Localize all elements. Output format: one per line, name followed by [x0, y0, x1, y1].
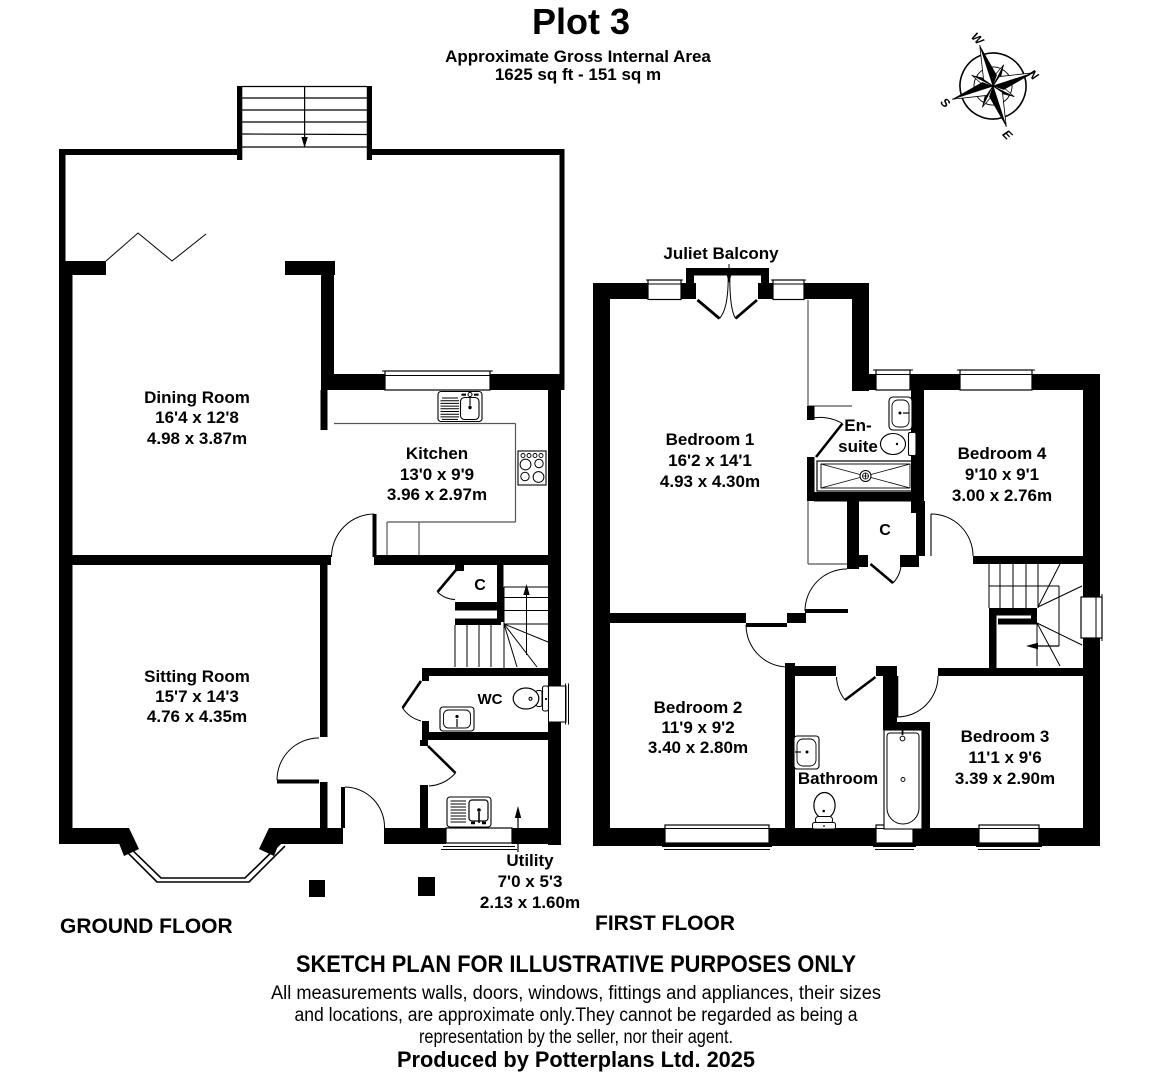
svg-text:15'7 x 14'3: 15'7 x 14'3: [155, 687, 239, 706]
svg-text:11'1 x 9'6: 11'1 x 9'6: [968, 748, 1041, 767]
svg-text:13'0 x 9'9: 13'0 x 9'9: [400, 465, 474, 484]
svg-text:Bathroom: Bathroom: [798, 769, 878, 788]
svg-text:and locations, are approximate: and locations, are approximate only.They…: [295, 1005, 858, 1026]
svg-text:Sitting Room: Sitting Room: [144, 667, 250, 686]
svg-text:All measurements walls, doors,: All measurements walls, doors, windows, …: [271, 983, 881, 1004]
svg-text:3.00 x 2.76m: 3.00 x 2.76m: [952, 486, 1052, 505]
svg-text:N: N: [1025, 67, 1041, 83]
svg-text:16'4 x 12'8: 16'4 x 12'8: [155, 408, 239, 427]
svg-text:Bedroom 1: Bedroom 1: [666, 430, 755, 449]
svg-text:Kitchen: Kitchen: [406, 444, 468, 463]
svg-text:1625 sq ft - 151 sq m: 1625 sq ft - 151 sq m: [495, 65, 661, 84]
svg-text:W: W: [968, 30, 987, 49]
svg-text:Produced by Potterplans Ltd. 2: Produced by Potterplans Ltd. 2025: [397, 1047, 755, 1072]
svg-text:4.76 x 4.35m: 4.76 x 4.35m: [147, 707, 247, 726]
svg-text:C: C: [474, 577, 486, 594]
svg-text:WC: WC: [478, 691, 503, 708]
svg-text:7'0 x 5'3: 7'0 x 5'3: [498, 872, 563, 891]
svg-text:GROUND FLOOR: GROUND FLOOR: [60, 915, 233, 938]
svg-text:Approximate Gross Internal Are: Approximate Gross Internal Area: [445, 47, 711, 66]
svg-text:representation by the seller,: representation by the seller, nor their …: [419, 1027, 733, 1048]
svg-text:Dining Room: Dining Room: [144, 388, 250, 407]
svg-text:Utility: Utility: [506, 851, 554, 870]
svg-text:4.93 x 4.30m: 4.93 x 4.30m: [660, 472, 760, 491]
svg-text:16'2 x 14'1: 16'2 x 14'1: [668, 451, 752, 470]
svg-text:E: E: [1000, 127, 1016, 143]
svg-text:3.96 x 2.97m: 3.96 x 2.97m: [387, 485, 487, 504]
svg-text:FIRST FLOOR: FIRST FLOOR: [595, 912, 735, 935]
svg-text:2.13 x 1.60m: 2.13 x 1.60m: [480, 893, 580, 912]
svg-text:Juliet Balcony: Juliet Balcony: [663, 244, 779, 263]
svg-text:9'10 x 9'1: 9'10 x 9'1: [965, 465, 1039, 484]
svg-text:Bedroom 4: Bedroom 4: [958, 444, 1047, 463]
svg-text:3.39 x 2.90m: 3.39 x 2.90m: [955, 769, 1055, 788]
svg-text:Bedroom 3: Bedroom 3: [961, 727, 1050, 746]
svg-text:3.40 x 2.80m: 3.40 x 2.80m: [648, 738, 748, 757]
svg-text:suite: suite: [838, 437, 878, 456]
svg-text:Plot 3: Plot 3: [532, 1, 630, 42]
svg-text:Bedroom 2: Bedroom 2: [654, 698, 743, 717]
svg-text:4.98 x 3.87m: 4.98 x 3.87m: [147, 429, 247, 448]
svg-text:En-: En-: [844, 416, 871, 435]
svg-text:SKETCH PLAN FOR ILLUSTRATIVE P: SKETCH PLAN FOR ILLUSTRATIVE PURPOSES ON…: [296, 951, 856, 978]
svg-text:11'9 x 9'2: 11'9 x 9'2: [661, 718, 734, 737]
svg-text:C: C: [879, 522, 891, 539]
svg-text:S: S: [938, 95, 954, 111]
